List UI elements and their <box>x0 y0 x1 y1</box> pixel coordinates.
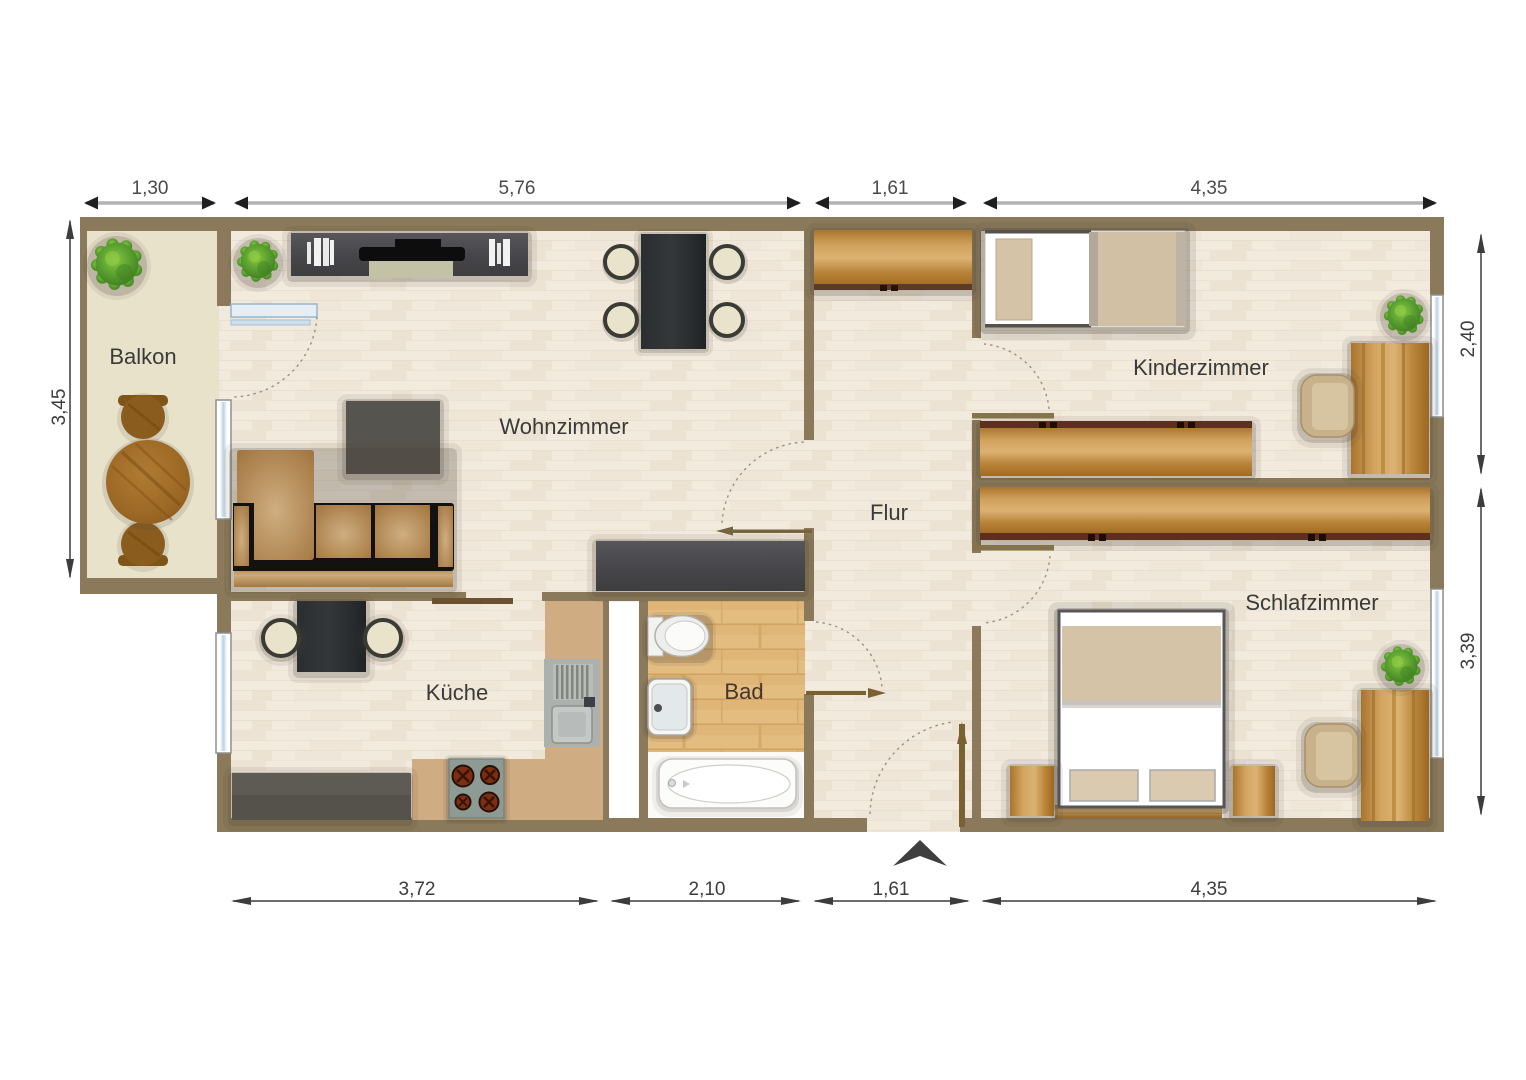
svg-text:2,10: 2,10 <box>689 879 726 900</box>
svg-text:3,39: 3,39 <box>1458 633 1479 670</box>
svg-text:1,61: 1,61 <box>873 879 910 900</box>
svg-text:Flur: Flur <box>870 500 908 525</box>
svg-text:3,45: 3,45 <box>49 389 70 426</box>
svg-text:3,72: 3,72 <box>399 879 436 900</box>
svg-text:Kinderzimmer: Kinderzimmer <box>1133 355 1269 380</box>
svg-text:Balkon: Balkon <box>109 344 176 369</box>
svg-text:2,40: 2,40 <box>1458 321 1479 358</box>
svg-text:5,76: 5,76 <box>499 178 536 199</box>
svg-text:4,35: 4,35 <box>1191 879 1228 900</box>
svg-text:4,35: 4,35 <box>1191 178 1228 199</box>
svg-text:1,30: 1,30 <box>132 178 169 199</box>
svg-text:Bad: Bad <box>724 679 763 704</box>
svg-text:Küche: Küche <box>426 680 488 705</box>
svg-text:Wohnzimmer: Wohnzimmer <box>499 414 628 439</box>
svg-text:Schlafzimmer: Schlafzimmer <box>1245 590 1378 615</box>
svg-text:1,61: 1,61 <box>872 178 909 199</box>
